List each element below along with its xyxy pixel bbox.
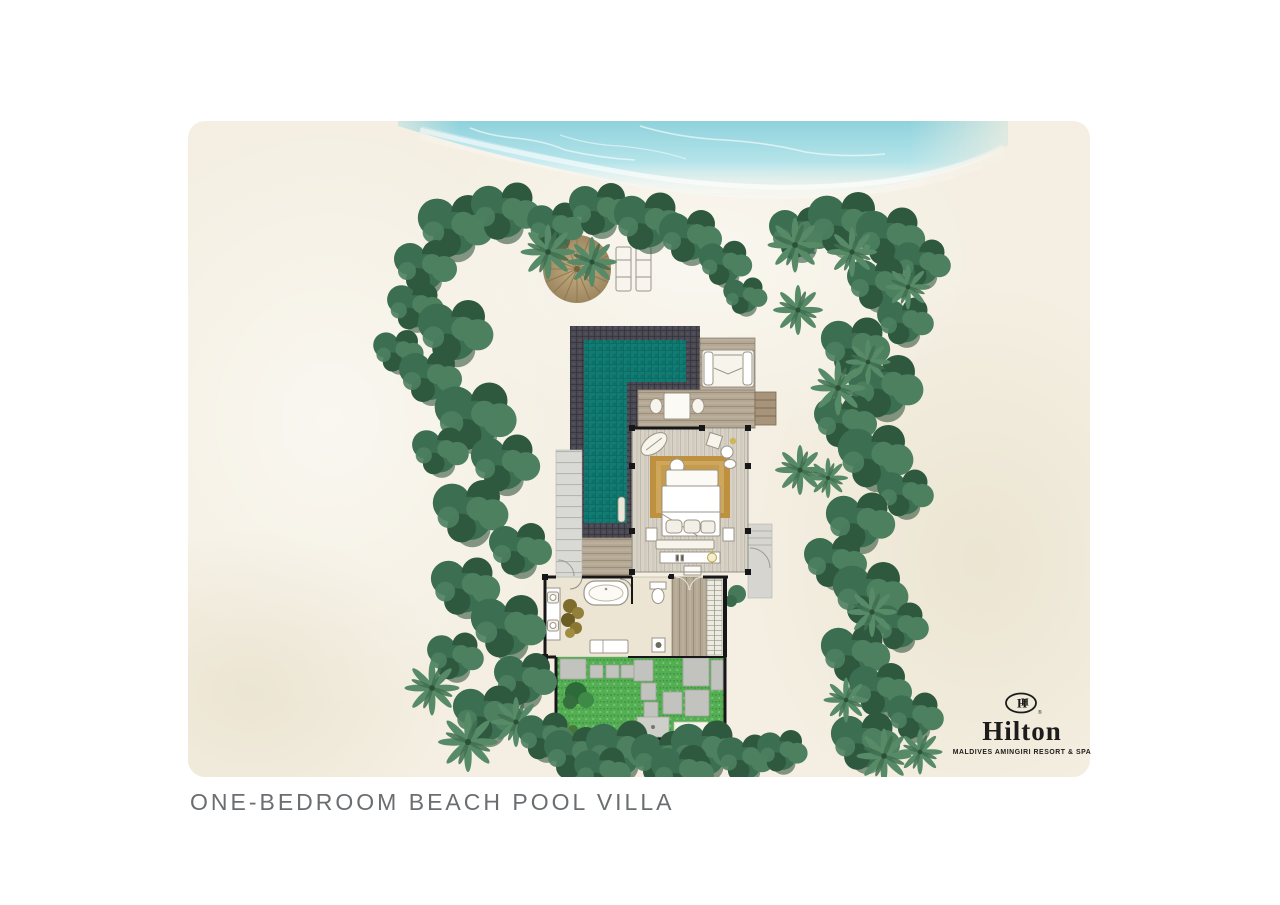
brand-name: Hilton bbox=[952, 717, 1092, 745]
daybed-icon bbox=[702, 350, 754, 387]
site-plan bbox=[0, 0, 1280, 905]
page-title: ONE-BEDROOM BEACH POOL VILLA bbox=[190, 789, 674, 816]
registered-mark: ® bbox=[1038, 709, 1042, 716]
bathtub-icon bbox=[584, 581, 628, 605]
brand-subtitle: MALDIVES AMINGIRI RESORT & SPA bbox=[952, 749, 1092, 756]
double-vanity-icon bbox=[546, 588, 560, 640]
svg-text:H: H bbox=[1021, 698, 1029, 709]
brand-logo: H H ® Hilton MALDIVES AMINGIRI RESORT & … bbox=[952, 690, 1092, 756]
nightstand-icon bbox=[723, 528, 734, 541]
bed-bench-icon bbox=[656, 540, 714, 549]
page: H H ® Hilton MALDIVES AMINGIRI RESORT & … bbox=[0, 0, 1280, 905]
bathroom bbox=[545, 577, 672, 657]
bedroom bbox=[632, 428, 748, 575]
walkway bbox=[556, 450, 582, 577]
wardrobe-corridor bbox=[672, 577, 722, 657]
pool-ladder-icon bbox=[618, 497, 625, 522]
side-steps bbox=[755, 392, 776, 425]
bath-bench-icon bbox=[590, 640, 628, 653]
nightstand-icon bbox=[646, 528, 657, 541]
hilton-emblem-icon: H H ® bbox=[999, 690, 1045, 716]
